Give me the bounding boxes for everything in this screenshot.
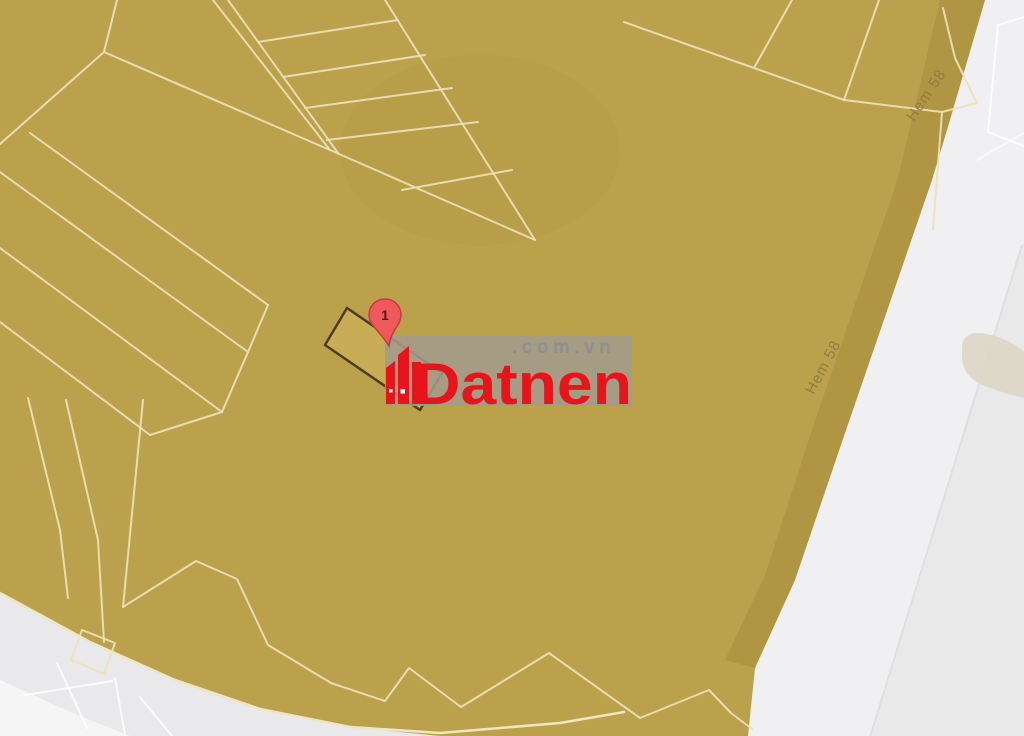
watermark: .com.vn Datnen: [385, 336, 632, 417]
map-viewport[interactable]: Hem 58 Hem 58 .com.vn Datnen 1: [0, 0, 1024, 736]
map-canvas[interactable]: Hem 58 Hem 58 .com.vn Datnen 1: [0, 0, 1024, 736]
watermark-brand-text: Datnen: [414, 352, 632, 417]
marker-number: 1: [381, 307, 389, 323]
